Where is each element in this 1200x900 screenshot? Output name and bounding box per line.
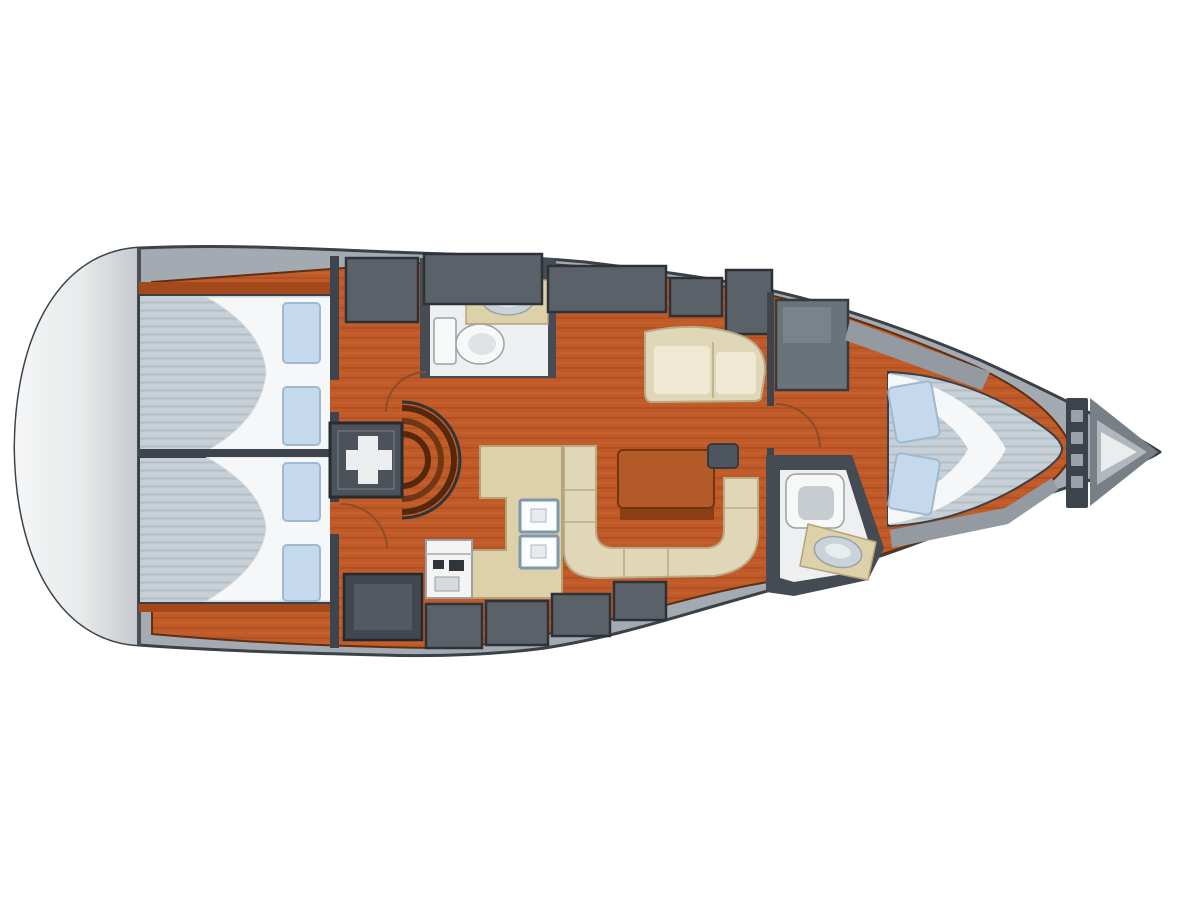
forward-bulkhead (767, 292, 774, 406)
aft-trim-top (139, 282, 335, 296)
locker (548, 266, 666, 312)
aft-cabins-divider (139, 449, 335, 457)
pillow (887, 381, 940, 444)
aft-cabin-door-gap (330, 502, 339, 534)
aft-cabin-starboard (139, 457, 333, 603)
bulkhead-slat (1071, 432, 1083, 444)
floor-plan-canvas (0, 0, 1200, 900)
settee-cushion (716, 352, 756, 394)
bulkhead-slat (1071, 410, 1083, 422)
locker (346, 258, 418, 322)
aft-cabin-door-gap (330, 380, 339, 412)
bulkhead-slat (1071, 476, 1083, 488)
wardrobe-sheen (783, 307, 831, 343)
galley-sink-inner (531, 509, 546, 522)
locker (726, 270, 772, 334)
locker (426, 604, 482, 648)
saloon-table (618, 450, 714, 508)
locker (614, 582, 666, 620)
locker (552, 594, 610, 636)
pillow (283, 303, 320, 363)
pillow (887, 453, 940, 516)
galley-sink-inner (531, 545, 546, 558)
pillow (283, 545, 320, 601)
stern-swim-platform (15, 248, 139, 645)
pillow (283, 463, 320, 521)
stove-oven (435, 577, 459, 591)
corner-seat (708, 444, 738, 468)
toilet-bowl-inner (468, 333, 496, 355)
yacht-floor-plan (0, 0, 1200, 900)
bulkhead-slat (1071, 454, 1083, 466)
locker (424, 254, 542, 304)
stove-burner (433, 560, 444, 569)
aft-cabin-port (139, 295, 333, 451)
toilet-inner (798, 486, 834, 520)
pillow (283, 387, 320, 445)
locker (670, 278, 722, 316)
settee-cushion (654, 346, 710, 394)
locker-dark-inner (354, 584, 412, 630)
stove-burner (449, 560, 464, 571)
locker (486, 601, 548, 645)
toilet-tank (434, 318, 456, 364)
bow (1066, 398, 1158, 508)
